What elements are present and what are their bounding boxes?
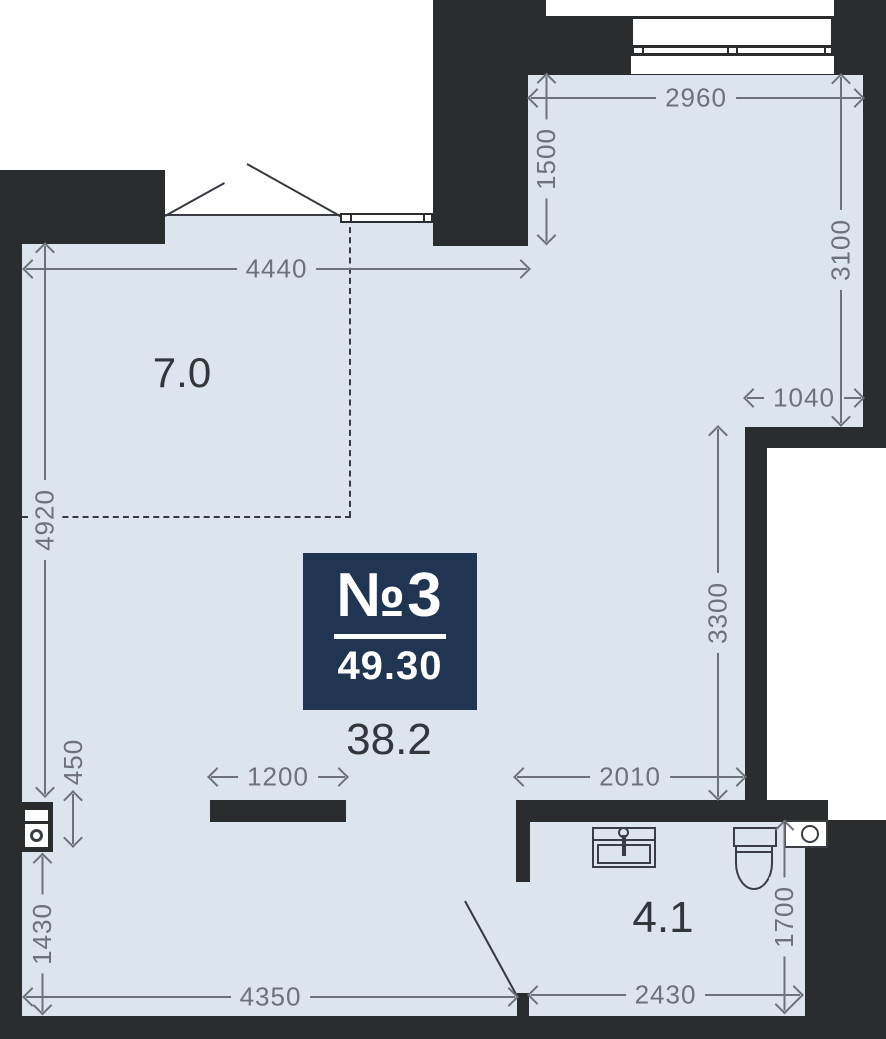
wall-bottom: [0, 1016, 886, 1039]
dimension-left-height: 4920: [31, 245, 59, 795]
balcony-slab: [633, 19, 831, 45]
dimension-bottom-width: 4350: [25, 983, 516, 1011]
dimension-right-mid: 3300: [704, 428, 732, 798]
unit-number: №3: [303, 561, 477, 631]
washing-machine-icon: [30, 829, 43, 842]
room-label-bathroom: 4.1: [593, 891, 733, 945]
unit-area: 49.30: [303, 644, 477, 689]
dimension-washer-niche-label: 450: [59, 716, 87, 808]
entry-door-leaf-right: [247, 163, 341, 217]
dimension-balcony-depth: 1500: [533, 76, 561, 243]
balcony-outline: [546, 0, 834, 16]
dimension-right-upper: 3100: [827, 76, 855, 424]
wall-top-left: [0, 170, 165, 244]
zone-divider-horizontal: [22, 516, 351, 518]
ventilation-circle-icon: [801, 825, 819, 843]
badge-divider: [334, 634, 446, 639]
entry-threshold: [165, 214, 340, 216]
wall-left: [0, 170, 22, 1039]
wall-bathroom-top: [516, 800, 828, 822]
dimension-hall-width: 4440: [25, 255, 528, 283]
balcony-window: [632, 46, 833, 55]
unit-badge: №3 49.30: [303, 553, 477, 710]
dimension-bathroom-width: 2430: [530, 981, 801, 1009]
wall-step: [745, 427, 886, 448]
toilet-seat-line: [735, 851, 773, 853]
wall-bathroom-left-upper: [516, 822, 530, 882]
dimension-top-width: 2960: [530, 84, 862, 112]
wall-right-upper: [863, 75, 886, 448]
washer-panel: [25, 810, 48, 821]
floor-plan: 2960 4440 1040 1200 2010 4350 2430 1500 …: [0, 0, 886, 1039]
dimension-island-width: 1200: [210, 763, 346, 791]
wall-right-inner: [745, 448, 767, 800]
room-label-main: 38.2: [309, 713, 469, 767]
room-label-hallway: 7.0: [122, 346, 242, 400]
faucet-stem: [622, 835, 626, 856]
wall-right-lower: [805, 820, 886, 1016]
dimension-left-lower: 1430: [29, 856, 57, 1013]
entry-window: [340, 213, 433, 223]
wall-top-center: [433, 75, 528, 246]
dimension-bathroom-depth: 1700: [771, 823, 799, 1012]
balcony-inner: [631, 56, 834, 74]
kitchen-partition: [210, 800, 346, 822]
entry-door-leaf-left: [165, 182, 225, 217]
